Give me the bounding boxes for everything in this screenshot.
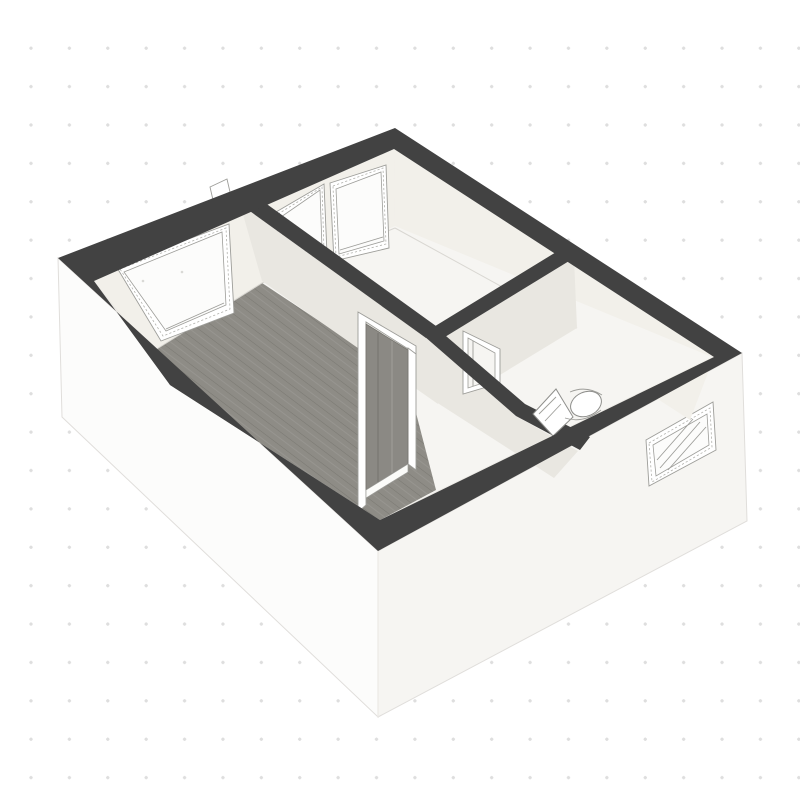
floor-plan-3d	[0, 0, 800, 800]
floor-plan-canvas[interactable]	[0, 0, 800, 800]
door-leaf	[366, 324, 408, 490]
